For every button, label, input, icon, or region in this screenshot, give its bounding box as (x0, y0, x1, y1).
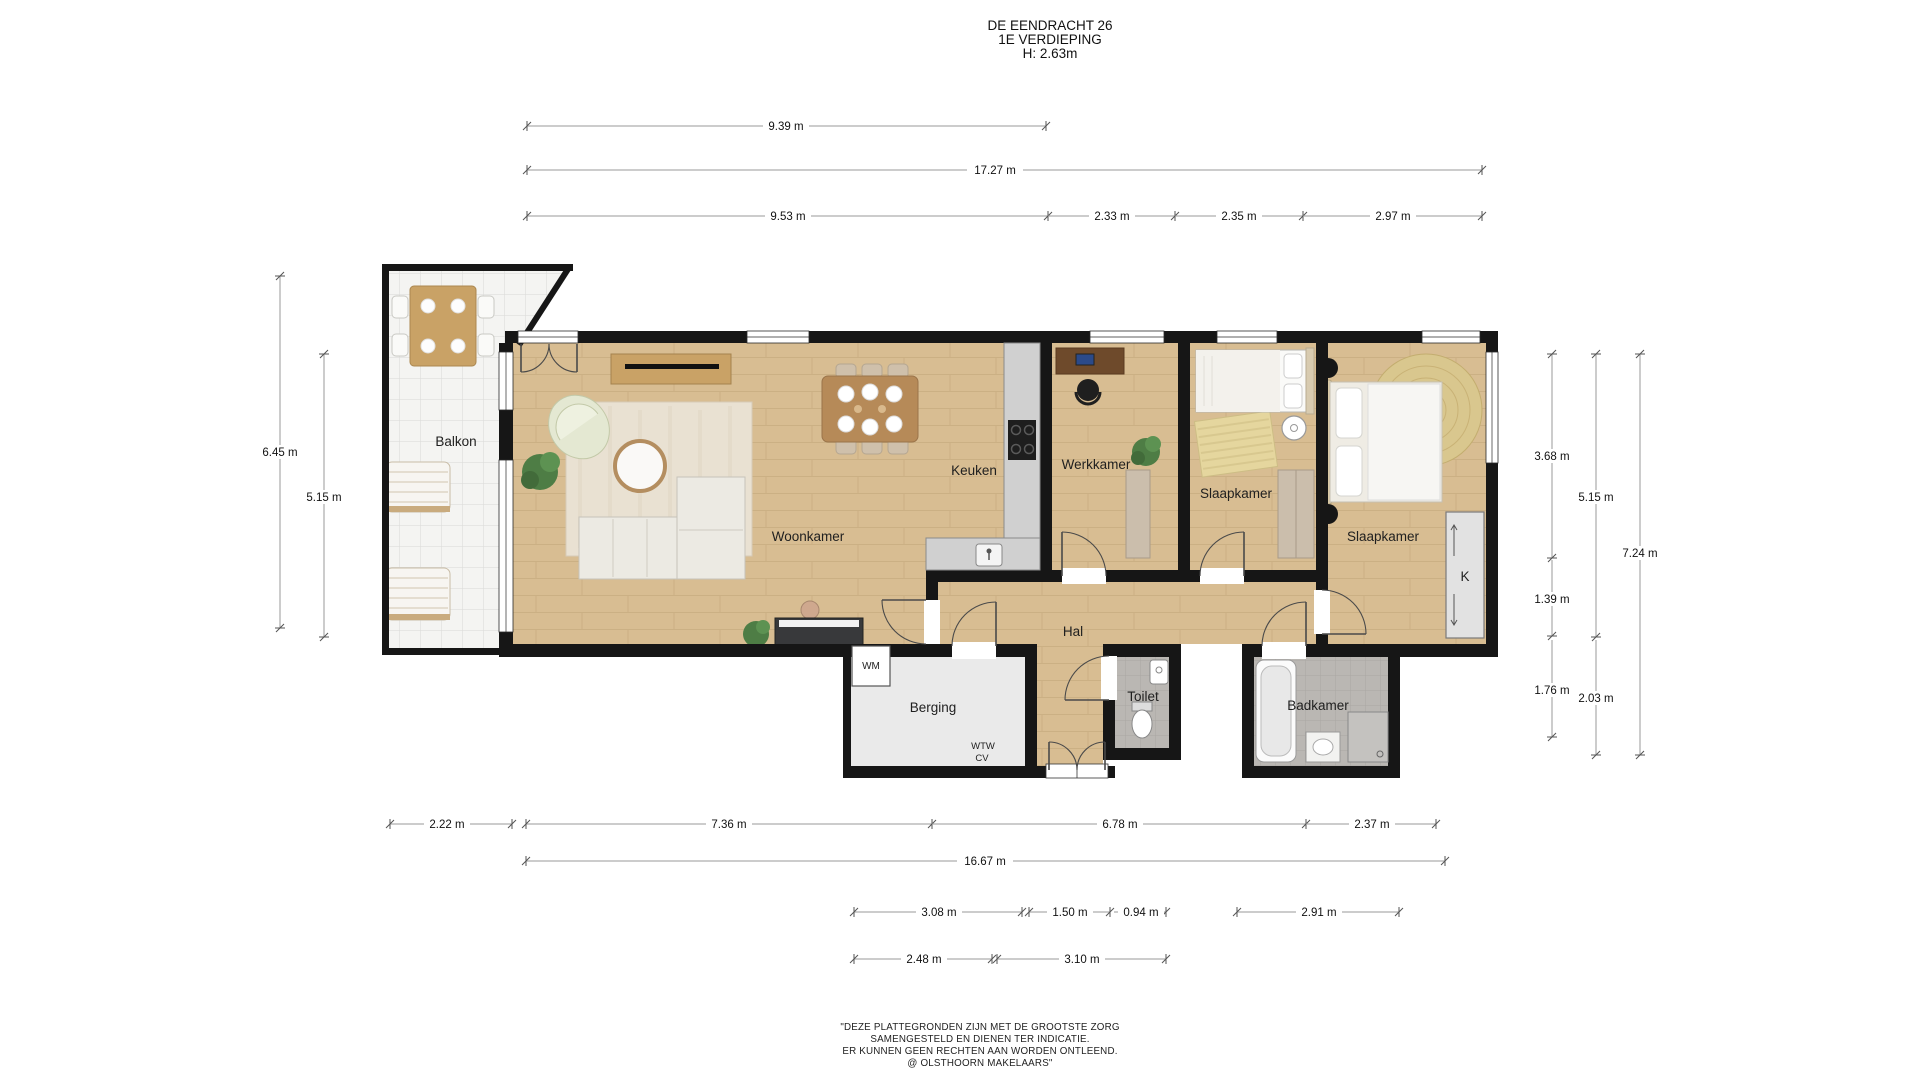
bed-double (1320, 380, 1442, 504)
floorplan-page: DE EENDRACHT 26 1E VERDIEPING H: 2.63m (0, 0, 1920, 1080)
dimension: 2.03 m (1573, 640, 1619, 759)
dim-label: 2.48 m (906, 954, 941, 966)
balcony-chair (478, 334, 494, 356)
title-height: H: 2.63m (1023, 46, 1078, 61)
desk-chair (1077, 379, 1099, 401)
balcony-chair (392, 334, 408, 356)
rug (1194, 411, 1277, 477)
cabinet (1126, 470, 1150, 558)
dimension: 5.15 m (301, 350, 347, 641)
dimension: 3.08 m (850, 905, 1026, 919)
label-wasmachine: WM (862, 661, 880, 672)
room-label-balkon: Balkon (435, 434, 476, 449)
dimension: 7.36 m (522, 817, 936, 831)
dimension: 7.24 m (1617, 350, 1663, 759)
dim-label: 5.15 m (306, 492, 341, 504)
dim-label: 7.36 m (711, 819, 746, 831)
side-table (1282, 416, 1306, 440)
room-label-badkamer: Badkamer (1287, 698, 1349, 713)
bed-single (1196, 348, 1314, 414)
dim-label: 16.67 m (964, 856, 1006, 868)
title-building: DE EENDRACHT 26 (987, 18, 1112, 33)
title-floor: 1E VERDIEPING (998, 32, 1102, 47)
room-label-hal: Hal (1063, 624, 1083, 639)
dimension: 2.37 m (1306, 817, 1440, 831)
dim-label: 2.33 m (1094, 211, 1129, 223)
bathroom-sink (1306, 732, 1340, 762)
balcony-lounger (386, 568, 450, 620)
window (499, 352, 513, 410)
room-label-slaapkamer-1: Slaapkamer (1200, 486, 1273, 501)
dimension: 16.67 m (522, 854, 1449, 868)
dimension-lines-top: 9.39 m 17.27 m 9.53 m 2.33 m 2.35 m (523, 119, 1486, 223)
room-label-slaapkamer-2: Slaapkamer (1347, 529, 1420, 544)
dimension: 1.50 m (1025, 905, 1114, 919)
dim-label: 2.22 m (429, 819, 464, 831)
dimension: 2.33 m (1048, 209, 1179, 223)
coffee-table (615, 441, 665, 491)
disclaimer-line-2: SAMENGESTELD EN DIENEN TER INDICATIE. (870, 1034, 1089, 1045)
toilet-bowl (1132, 702, 1152, 738)
dimension: 1.76 m (1529, 640, 1575, 741)
window (1217, 331, 1277, 343)
window (747, 331, 809, 343)
dim-label: 2.37 m (1354, 819, 1389, 831)
dimension: 9.39 m (523, 119, 1050, 133)
dimension-lines-bottom: 2.22 m 7.36 m 6.78 m 2.37 m 16.67 m (386, 817, 1449, 966)
dim-label: 2.03 m (1578, 693, 1613, 705)
dim-label: 3.68 m (1534, 451, 1569, 463)
monitor (1076, 354, 1094, 365)
balcony-chair (392, 296, 408, 318)
room-label-toilet: Toilet (1127, 689, 1159, 704)
disclaimer: "DEZE PLATTEGRONDEN ZIJN MET DE GROOTSTE… (840, 1022, 1119, 1069)
dimension: 17.27 m (523, 163, 1486, 177)
title-block: DE EENDRACHT 26 1E VERDIEPING H: 2.63m (987, 18, 1112, 61)
window (1090, 331, 1164, 343)
window (499, 460, 513, 632)
dining-set (822, 364, 918, 454)
floorplan-drawing: DE EENDRACHT 26 1E VERDIEPING H: 2.63m (0, 0, 1920, 1080)
dim-label: 1.50 m (1052, 907, 1087, 919)
dim-label: 1.76 m (1534, 685, 1569, 697)
room-label-woonkamer: Woonkamer (772, 529, 845, 544)
dimension: 2.35 m (1175, 209, 1307, 223)
toilet-sink (1150, 660, 1168, 684)
kitchen-sink (976, 544, 1002, 566)
dimension: 1.39 m (1529, 560, 1575, 640)
dim-label: 5.15 m (1578, 492, 1613, 504)
label-cv: CV (975, 753, 989, 764)
dim-label: 1.39 m (1534, 594, 1569, 606)
dimension: 5.15 m (1573, 350, 1619, 641)
disclaimer-line-3: ER KUNNEN GEEN RECHTEN AAN WORDEN ONTLEE… (842, 1046, 1117, 1057)
dim-label: 2.97 m (1375, 211, 1410, 223)
tv (625, 364, 719, 369)
dimension-lines-right: 3.68 m 1.39 m 1.76 m 5.15 m 2.03 m (1529, 350, 1663, 759)
dimension: 2.97 m (1303, 209, 1486, 223)
piano-stool (801, 601, 819, 619)
dimension: 2.22 m (386, 817, 516, 831)
disclaimer-line-4: @ OLSTHOORN MAKELAARS" (907, 1058, 1053, 1069)
dimension: 6.78 m (932, 817, 1310, 831)
dim-label: 3.10 m (1064, 954, 1099, 966)
balcony-chair (478, 296, 494, 318)
dimension: 3.68 m (1529, 350, 1575, 562)
dim-label: 9.53 m (770, 211, 805, 223)
balcony-door-window (518, 331, 578, 343)
room-label-kast: K (1460, 569, 1469, 584)
dim-label: 9.39 m (768, 121, 803, 133)
balcony-lounger (386, 462, 450, 512)
label-wtw: WTW (971, 741, 995, 752)
dim-label: 2.35 m (1221, 211, 1256, 223)
dimension: 3.10 m (993, 952, 1170, 966)
shower (1348, 712, 1388, 762)
dim-label: 0.94 m (1123, 907, 1158, 919)
dimension: 2.48 m (850, 952, 996, 966)
dim-label: 3.08 m (921, 907, 956, 919)
disclaimer-line-1: "DEZE PLATTEGRONDEN ZIJN MET DE GROOTSTE… (840, 1022, 1119, 1033)
dim-label: 6.78 m (1102, 819, 1137, 831)
dimension-lines-left: 6.45 m 5.15 m (257, 272, 347, 641)
dimension: 0.94 m (1114, 905, 1170, 919)
hal-entry-floor (1037, 644, 1103, 766)
dimension: 2.91 m (1233, 905, 1403, 919)
room-label-werkkamer: Werkkamer (1062, 457, 1131, 472)
room-label-keuken: Keuken (951, 463, 997, 478)
dim-label: 2.91 m (1301, 907, 1336, 919)
dim-label: 17.27 m (974, 165, 1016, 177)
dim-label: 6.45 m (262, 447, 297, 459)
window (1422, 331, 1480, 343)
room-label-berging: Berging (910, 700, 957, 715)
dimension: 9.53 m (523, 209, 1052, 223)
window (1486, 352, 1498, 463)
dimension: 6.45 m (257, 272, 303, 632)
balcony-table (410, 286, 476, 366)
dim-label: 7.24 m (1622, 548, 1657, 560)
